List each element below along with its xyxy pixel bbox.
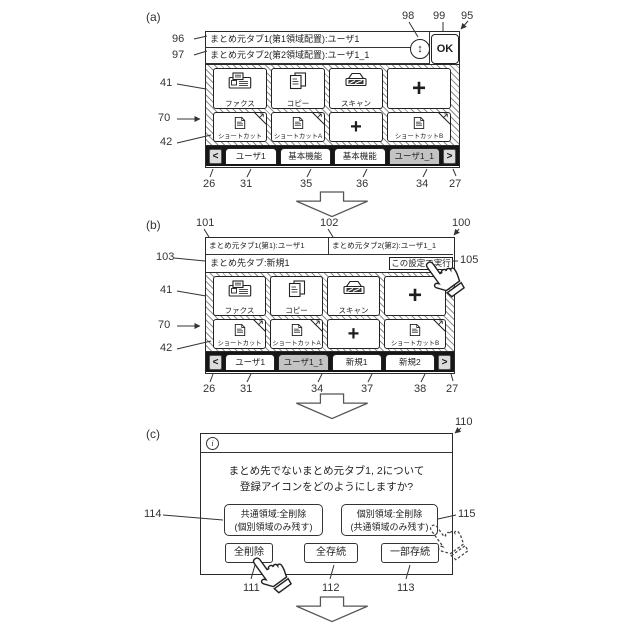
tab-basic-2[interactable]: 基本機能 [334,148,386,164]
ref-96: 96 [172,33,184,45]
keep-all-button[interactable]: 全存続 [304,543,358,563]
figure-a-label: (a) [146,10,161,24]
scan-icon [342,280,366,295]
source-tab-cell-1: まとめ元タブ1(第1):ユーザ1 [206,238,329,255]
shortcut-arrow-icon [310,319,323,332]
ref-103: 103 [156,251,174,263]
ok-button[interactable]: OK [431,34,459,64]
tile-label: ショートカットA [274,134,322,140]
shortcut-arrow-icon [312,112,325,125]
tab-scroll-left[interactable]: < [209,355,222,370]
copy-icon [289,72,307,90]
flow-down-arrow [294,393,370,420]
copy-icon [288,280,306,298]
scan-icon [344,72,368,87]
fax-icon [228,280,252,297]
tab-user1[interactable]: ユーザ1 [225,354,275,370]
tile-shortcut[interactable]: ショートカット [213,319,266,349]
tile-label: ファクス [225,307,255,315]
ref-98: 98 [402,10,414,22]
plus-icon: + [348,324,360,344]
ref-102: 102 [320,217,338,229]
tab-scroll-right[interactable]: > [443,149,456,164]
patent-figure-sheet: (a) 96 97 41 70 42 98 99 95 26 31 35 36 … [0,0,640,640]
tile-copy[interactable]: コピー [270,276,323,316]
figure-c-label: (c) [146,427,160,441]
source-tab-cell-2: まとめ元タブ2(第2):ユーザ1_1 [329,238,453,255]
icon-grid-b: ファクス コピー スキャン + ショートカット ショートカットA [206,272,454,352]
tab-user1-1[interactable]: ユーザ1_1 [278,354,328,370]
ref-31a: 31 [240,178,252,190]
ref-26b: 26 [203,383,215,395]
tab-scroll-left[interactable]: < [209,149,222,164]
tab-bar-b: < ユーザ1 ユーザ1_1 新規1 新規2 > [206,352,454,372]
ref-34a: 34 [416,178,428,190]
plus-icon: + [350,117,362,137]
shortcut-page-icon [409,323,421,337]
tab-new1[interactable]: 新規1 [332,354,382,370]
info-icon: i [206,437,219,450]
tile-shortcut[interactable]: ショートカット [213,112,267,142]
ref-101: 101 [196,217,214,229]
tile-scan[interactable]: スキャン [327,276,380,316]
source-tab-row-1: まとめ元タブ1(第1領域配置):ユーザ1 [206,32,430,48]
tile-label: スキャン [341,100,371,108]
tab-new2[interactable]: 新規2 [385,354,435,370]
tile-label: コピー [287,100,310,108]
shortcut-page-icon [292,116,304,130]
ref-42a: 42 [160,136,172,148]
ref-114: 114 [144,508,162,520]
dialog-message-line-1: まとめ先でないまとめ元タブ1, 2について [201,463,452,479]
option-common-area-delete[interactable]: 共通領域:全削除 (個別領域のみ残す) [224,504,323,536]
fax-icon [228,72,252,89]
tile-add[interactable]: + [387,68,451,109]
tile-fax[interactable]: ファクス [213,276,266,316]
ref-41b: 41 [160,284,172,296]
dialog-message-line-2: 登録アイコンをどのようにしますか? [201,479,452,495]
tile-label: スキャン [339,307,369,315]
option-line-2: (個別領域のみ残す) [225,521,322,534]
icon-grid-a: ファクス コピー スキャン + ショートカット ショートカットA [206,64,459,146]
ref-31b: 31 [240,383,252,395]
ref-70b: 70 [158,319,170,331]
tile-shortcut-b[interactable]: ショートカットB [387,112,451,142]
shortcut-arrow-icon [253,319,266,332]
shortcut-page-icon [291,323,303,337]
ref-42b: 42 [160,342,172,354]
plus-icon: + [408,284,422,308]
ref-95: 95 [461,10,473,22]
tile-scan[interactable]: スキャン [329,68,383,109]
flow-down-arrow [294,596,370,623]
option-line-1: 個別領域:全削除 [342,508,437,521]
ref-26a: 26 [203,178,215,190]
tile-shortcut-a[interactable]: ショートカットA [271,112,325,142]
plus-icon: + [412,77,426,101]
tile-label: ショートカット [218,134,262,140]
option-line-1: 共通領域:全削除 [225,508,322,521]
info-glyph: i [211,440,213,448]
shortcut-page-icon [413,116,425,130]
ref-99: 99 [433,10,445,22]
ref-35: 35 [300,178,312,190]
ref-38: 38 [414,383,426,395]
tile-label: ショートカット [217,341,261,347]
ref-41a: 41 [160,77,172,89]
tile-copy[interactable]: コピー [271,68,325,109]
reorder-updown-icon[interactable]: ↕ [410,39,430,59]
tab-user1[interactable]: ユーザ1 [225,148,277,164]
tile-add[interactable]: + [327,319,380,349]
updown-glyph: ↕ [417,43,423,55]
ref-27b: 27 [446,383,458,395]
source-tab-row-2: まとめ元タブ2(第2領域配置):ユーザ1_1 [206,48,430,64]
tile-label: ファクス [225,100,255,108]
ref-110: 110 [455,416,473,428]
shortcut-arrow-icon [438,112,451,125]
ref-70a: 70 [158,112,170,124]
ref-113: 113 [397,582,415,594]
ref-112: 112 [322,582,340,594]
dest-tab-row: まとめ先タブ:新規1 [206,255,290,271]
tile-fax[interactable]: ファクス [213,68,267,109]
tab-scroll-right[interactable]: > [438,355,451,370]
figure-a-screen: まとめ元タブ1(第1領域配置):ユーザ1 まとめ元タブ2(第2領域配置):ユーザ… [205,31,460,168]
tab-basic-1[interactable]: 基本機能 [280,148,332,164]
ref-105: 105 [460,254,478,266]
ref-100: 100 [452,217,470,229]
tile-shortcut-b[interactable]: ショートカットB [384,319,446,349]
confirm-dialog: i まとめ先でないまとめ元タブ1, 2について 登録アイコンをどのようにしますか… [200,433,453,575]
tile-label: コピー [285,307,308,315]
tile-label: ショートカットA [272,341,320,347]
shortcut-page-icon [234,116,246,130]
tab-user1-1[interactable]: ユーザ1_1 [389,148,441,164]
ref-36: 36 [356,178,368,190]
dialog-title-bar: i [201,434,452,453]
figure-b-label: (b) [146,218,161,232]
shortcut-arrow-icon [433,319,446,332]
shortcut-arrow-icon [254,112,267,125]
shortcut-page-icon [234,323,246,337]
tile-label: ショートカットB [395,134,443,140]
flow-down-arrow [294,191,370,218]
ref-97: 97 [172,49,184,61]
figure-b-screen: まとめ元タブ1(第1):ユーザ1 まとめ元タブ2(第2):ユーザ1_1 まとめ先… [205,237,455,374]
ref-27a: 27 [449,178,461,190]
tab-bar-a: < ユーザ1 基本機能 基本機能 ユーザ1_1 > [206,146,459,166]
tile-add[interactable]: + [329,112,383,142]
ref-115: 115 [458,508,476,520]
tile-label: ショートカットB [391,341,439,347]
tile-shortcut-a[interactable]: ショートカットA [270,319,323,349]
